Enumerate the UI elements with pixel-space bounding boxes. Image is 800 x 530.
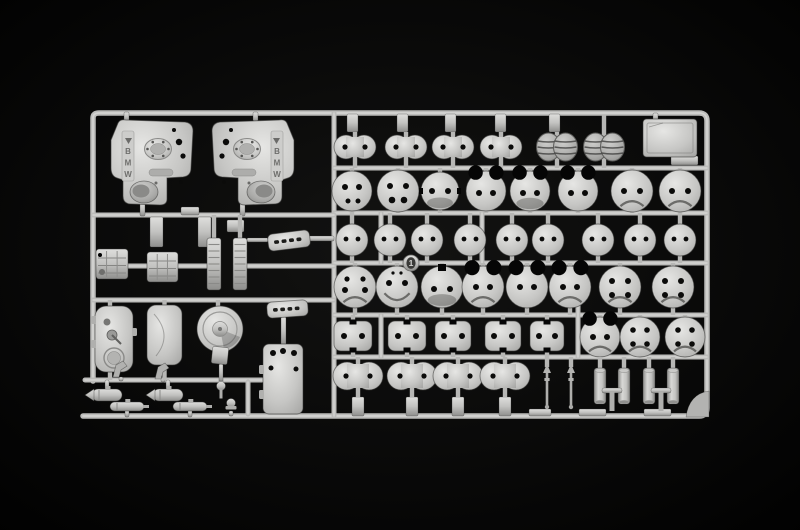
embossed-brand-letter: B: [125, 147, 131, 156]
sprue-gate-tab: [281, 317, 286, 345]
engine-disc: [580, 311, 620, 357]
sprue-gate-tab: [219, 364, 223, 381]
ribbed-housing: [147, 252, 178, 282]
embossed-brand-letter: M: [125, 159, 132, 168]
embossed-brand-letter: W: [273, 170, 281, 179]
sprue-number-label: 1: [409, 258, 414, 268]
sprue-gate-tab: [253, 112, 258, 121]
gearbox-cover: [91, 300, 137, 380]
sprue-gate-tab: [499, 397, 511, 416]
sprue-gate-tab: [119, 377, 123, 381]
model-kit-sprue-photo: BMWBMW1: [0, 0, 800, 530]
sprue-photo-canvas: BMWBMW1: [0, 0, 800, 530]
embossed-brand-letter: B: [274, 147, 280, 156]
engine-mount-pad: [334, 315, 372, 357]
sprue-gate-tab: [406, 397, 418, 416]
sprue-gate-tab: [308, 236, 334, 241]
engine-mount-pad: [435, 315, 471, 357]
sprue-gate-tab: [549, 114, 560, 132]
valve-part: [226, 399, 237, 410]
sprue-gate-tab: [445, 114, 456, 132]
hatch-door-panel: [259, 344, 303, 414]
embossed-brand-letter: M: [274, 159, 281, 168]
sprue-gate-tab: [644, 409, 671, 416]
sprue-gate-tab: [579, 409, 606, 416]
ribbed-housing: [96, 249, 128, 279]
engine-disc: [466, 165, 506, 213]
sprue-gate-tab: [347, 114, 358, 132]
sprue-gate-tab: [529, 409, 551, 416]
sprue-gate-tab: [495, 114, 506, 132]
engine-disc: [510, 165, 550, 213]
engine-disc: [558, 165, 598, 213]
sprue-gate-tab: [397, 114, 408, 132]
sprue-gate-tab: [229, 411, 233, 416]
louvered-vent: [266, 300, 308, 319]
engine-mount-pad: [388, 315, 426, 357]
sprue-gate-tab: [150, 217, 163, 247]
sprue-gate-tab: [452, 397, 464, 416]
sprue-gate-tab: [181, 207, 199, 215]
sprue-number-tag: 1: [403, 255, 419, 271]
sprue-gate-tab: [352, 397, 364, 416]
embossed-brand-letter: W: [124, 170, 132, 179]
sprue-gate-tab: [247, 238, 268, 242]
access-panel-plate: [643, 119, 697, 157]
engine-mount-pad: [530, 315, 564, 357]
engine-mount-pad: [485, 315, 521, 357]
